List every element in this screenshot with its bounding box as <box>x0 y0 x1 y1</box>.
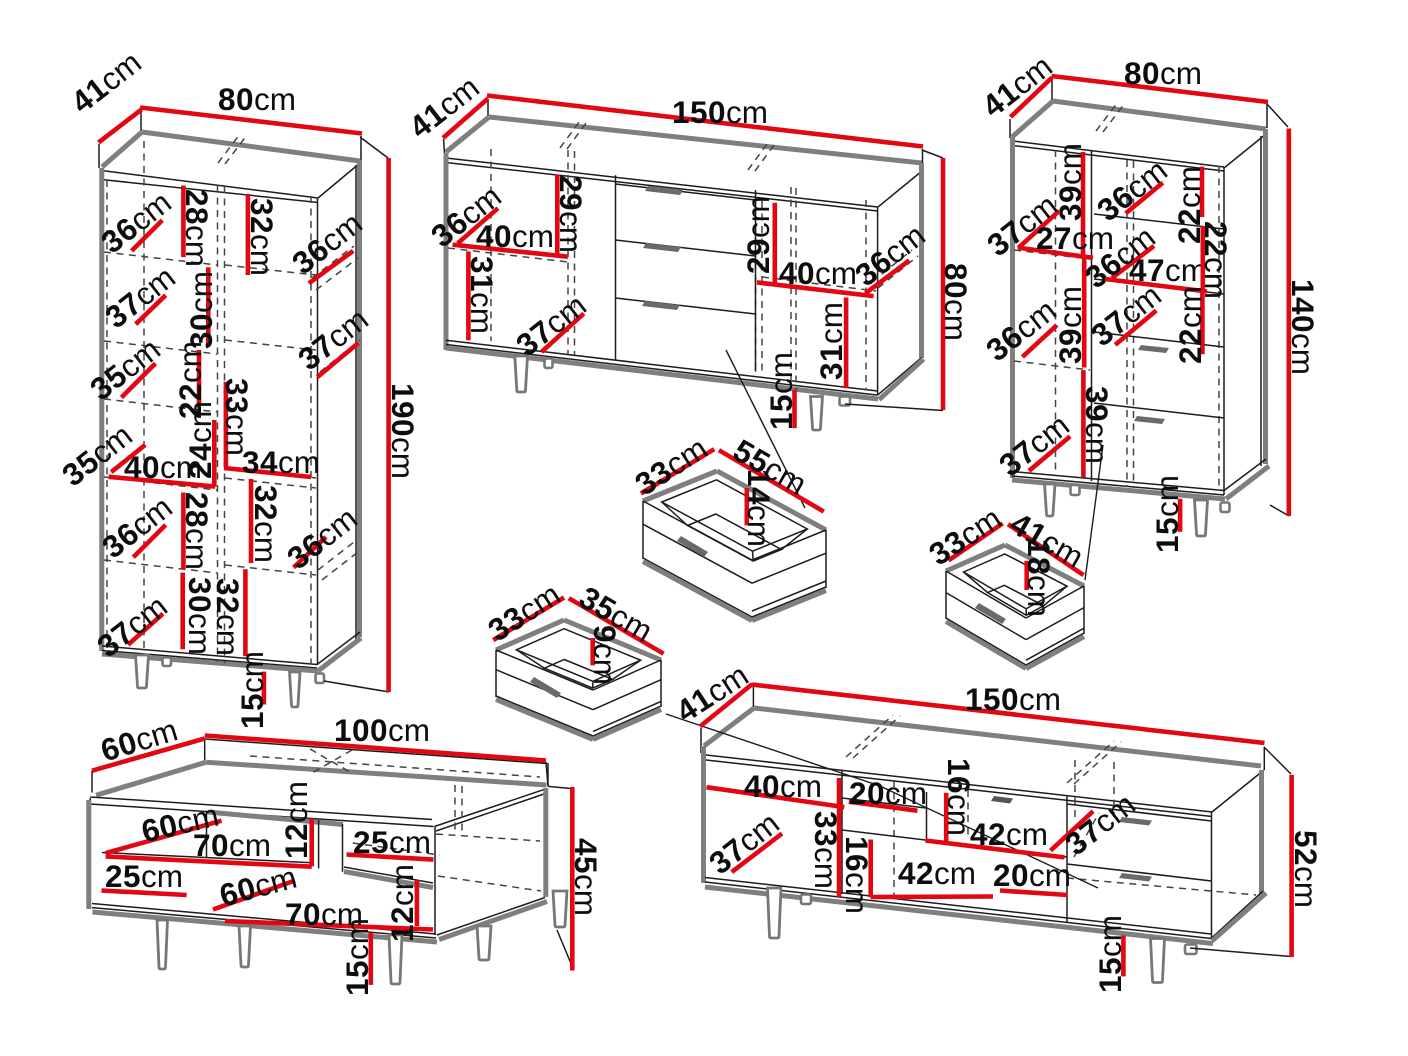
svg-text:150cm: 150cm <box>965 681 1061 717</box>
svg-text:32cm: 32cm <box>210 578 246 656</box>
svg-text:20cm: 20cm <box>849 775 927 811</box>
svg-text:25cm: 25cm <box>105 858 183 894</box>
svg-text:80cm: 80cm <box>938 263 974 341</box>
svg-text:45cm: 45cm <box>568 838 604 916</box>
svg-text:40cm: 40cm <box>779 255 857 291</box>
svg-text:100cm: 100cm <box>334 712 430 748</box>
svg-text:12cm: 12cm <box>384 864 420 942</box>
svg-text:28cm: 28cm <box>179 492 215 570</box>
svg-text:70cm: 70cm <box>193 827 271 863</box>
svg-text:25cm: 25cm <box>353 824 431 860</box>
svg-text:140cm: 140cm <box>1285 279 1321 375</box>
svg-text:39cm: 39cm <box>1052 286 1088 364</box>
svg-text:190cm: 190cm <box>385 383 421 479</box>
svg-text:39cm: 39cm <box>1079 386 1115 464</box>
svg-text:18cm: 18cm <box>1021 539 1057 617</box>
svg-text:15cm: 15cm <box>234 651 270 729</box>
svg-text:32cm: 32cm <box>244 198 280 276</box>
svg-text:16cm: 16cm <box>839 836 875 914</box>
svg-text:30cm: 30cm <box>183 271 219 349</box>
svg-text:80cm: 80cm <box>218 81 296 117</box>
svg-text:40cm: 40cm <box>744 768 822 804</box>
svg-text:14cm: 14cm <box>741 469 777 547</box>
svg-text:80cm: 80cm <box>1124 55 1202 91</box>
svg-text:29cm: 29cm <box>740 196 776 274</box>
svg-text:12cm: 12cm <box>278 781 314 859</box>
svg-text:22cm: 22cm <box>1172 286 1208 364</box>
svg-text:20cm: 20cm <box>993 857 1071 893</box>
svg-text:34cm: 34cm <box>242 444 320 480</box>
svg-text:15cm: 15cm <box>1149 475 1185 553</box>
svg-text:15cm: 15cm <box>339 918 375 996</box>
svg-text:15cm: 15cm <box>763 352 799 430</box>
svg-text:40cm: 40cm <box>476 218 554 254</box>
svg-text:31cm: 31cm <box>464 256 500 334</box>
svg-text:9cm: 9cm <box>587 625 623 685</box>
svg-text:33cm: 33cm <box>808 811 844 889</box>
svg-text:15cm: 15cm <box>1092 915 1128 993</box>
svg-text:31cm: 31cm <box>813 302 849 380</box>
svg-text:42cm: 42cm <box>898 855 976 891</box>
svg-text:150cm: 150cm <box>672 94 768 130</box>
svg-text:52cm: 52cm <box>1288 830 1324 908</box>
svg-text:32cm: 32cm <box>248 485 284 563</box>
svg-text:42cm: 42cm <box>970 816 1048 852</box>
svg-text:29cm: 29cm <box>553 175 589 253</box>
svg-text:28cm: 28cm <box>179 189 215 267</box>
svg-text:40cm: 40cm <box>124 449 202 485</box>
